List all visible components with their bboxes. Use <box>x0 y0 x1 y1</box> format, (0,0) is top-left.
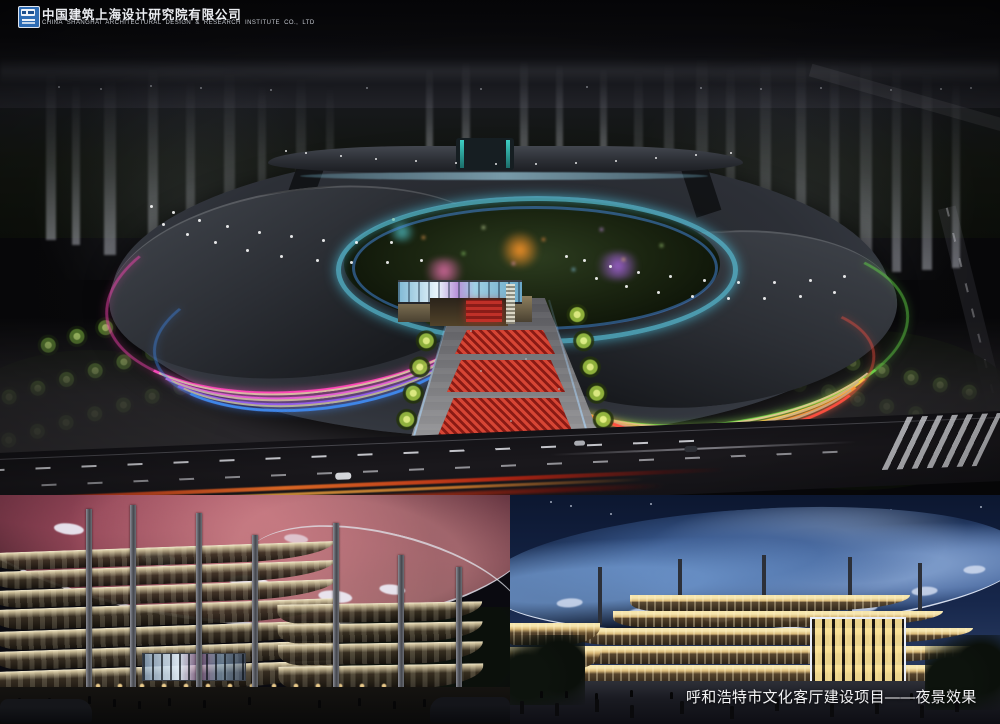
support-mast <box>333 523 339 689</box>
car <box>684 446 697 453</box>
glass-atrium <box>810 617 906 687</box>
presentation-board: 中国建筑上海设计研究院有限公司 CHINA SHANGHAI ARCHITECT… <box>0 0 1000 724</box>
car <box>335 472 351 480</box>
roof-lights <box>565 255 568 258</box>
tree-silhouettes <box>510 635 585 705</box>
rear-gate <box>456 138 514 170</box>
roof-lights <box>150 205 153 208</box>
rear-glass-band <box>300 172 708 180</box>
company-header: 中国建筑上海设计研究院有限公司 CHINA SHANGHAI ARCHITECT… <box>0 0 1000 34</box>
car <box>574 440 585 445</box>
red-pattern-paving <box>447 360 565 392</box>
project-title: 呼和浩特市文化客厅建设项目——夜景效果 <box>686 686 977 707</box>
parked-car <box>430 697 510 723</box>
pedestrians <box>470 330 472 332</box>
people-silhouettes <box>540 691 543 698</box>
white-louver <box>506 284 515 324</box>
support-mast <box>86 509 92 689</box>
company-logo-icon <box>18 6 40 28</box>
parked-car <box>0 699 92 723</box>
eye-level-rendering-nebula-canopy <box>0 495 510 724</box>
support-mast <box>196 513 202 689</box>
support-mast <box>456 567 462 689</box>
stars <box>550 501 552 503</box>
people-silhouettes <box>520 701 524 714</box>
red-lattice-screen <box>466 300 502 322</box>
support-mast <box>398 555 404 689</box>
lit-glass-corridor <box>142 653 246 681</box>
company-name-en: CHINA SHANGHAI ARCHITECTURAL DESIGN & RE… <box>42 20 315 26</box>
red-pattern-paving <box>455 330 555 354</box>
support-mast <box>252 535 258 689</box>
aerial-night-rendering <box>0 0 1000 495</box>
support-mast <box>130 505 136 689</box>
roof-lights <box>285 150 287 152</box>
